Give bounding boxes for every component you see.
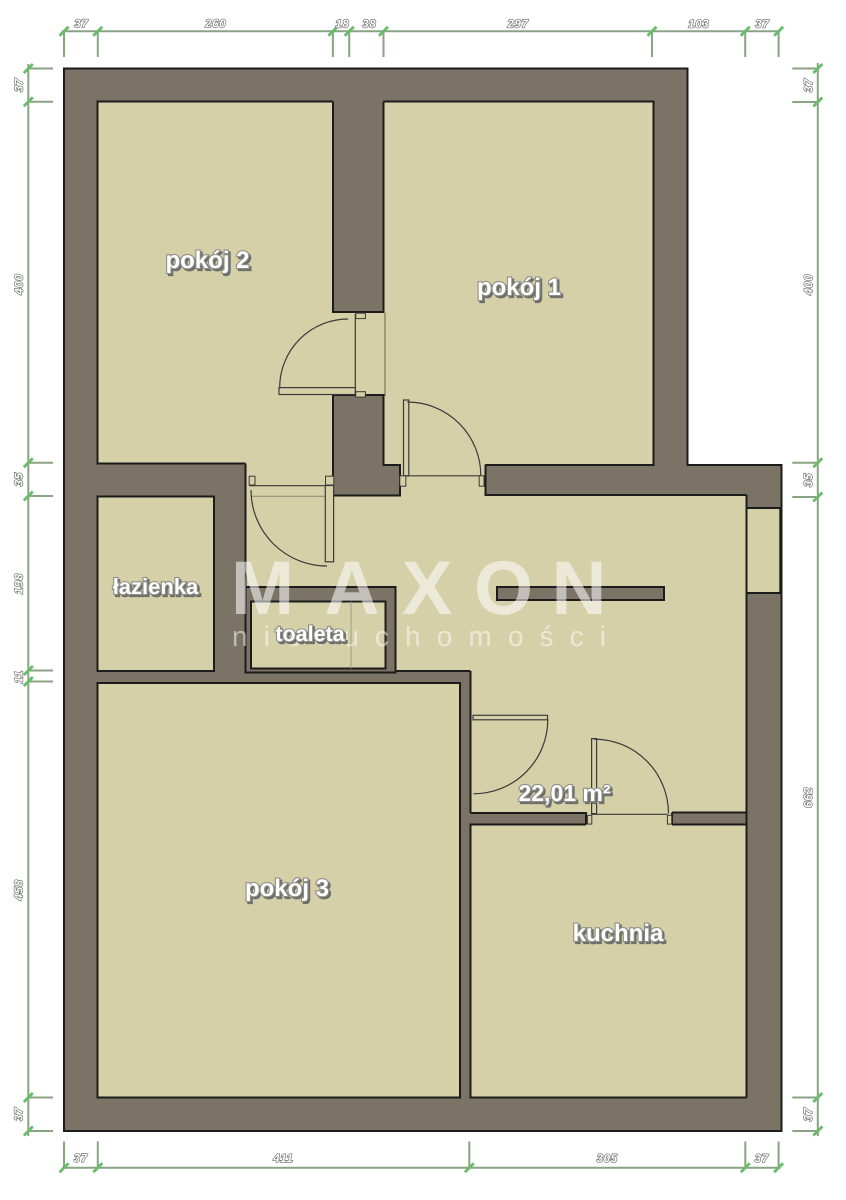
svg-text:kuchnia: kuchnia [573,920,664,947]
svg-text:37: 37 [14,78,26,92]
svg-text:37: 37 [755,19,769,31]
svg-text:37: 37 [74,18,88,30]
svg-text:A: A [325,546,380,631]
svg-text:37: 37 [755,1153,769,1165]
svg-text:pokój 2: pokój 2 [165,247,249,274]
svg-text:O: O [474,546,533,631]
svg-text:35: 35 [14,472,26,486]
svg-text:18: 18 [335,18,349,30]
svg-text:pokój 3: pokój 3 [245,875,329,902]
svg-text:N: N [552,546,607,631]
svg-text:305: 305 [597,1153,618,1165]
svg-text:458: 458 [13,879,25,901]
svg-text:37: 37 [74,1153,88,1165]
svg-text:22,01 m²: 22,01 m² [518,780,610,806]
svg-text:400: 400 [803,274,815,296]
svg-text:103: 103 [688,19,709,31]
svg-text:38: 38 [362,18,376,30]
svg-text:37: 37 [803,1107,815,1121]
svg-text:297: 297 [506,19,528,31]
svg-text:37: 37 [13,1107,25,1121]
svg-text:400: 400 [14,274,26,296]
svg-text:M: M [231,546,294,631]
svg-text:260: 260 [204,18,226,30]
svg-text:198: 198 [14,573,26,594]
svg-text:X: X [402,546,453,631]
svg-text:toaleta: toaleta [275,622,345,646]
svg-text:37: 37 [803,78,815,92]
svg-text:11: 11 [13,670,25,683]
svg-text:łazienka: łazienka [113,574,199,599]
svg-text:pokój 1: pokój 1 [477,274,561,301]
svg-text:411: 411 [272,1153,293,1165]
svg-text:35: 35 [803,473,815,487]
svg-text:662: 662 [803,787,815,808]
